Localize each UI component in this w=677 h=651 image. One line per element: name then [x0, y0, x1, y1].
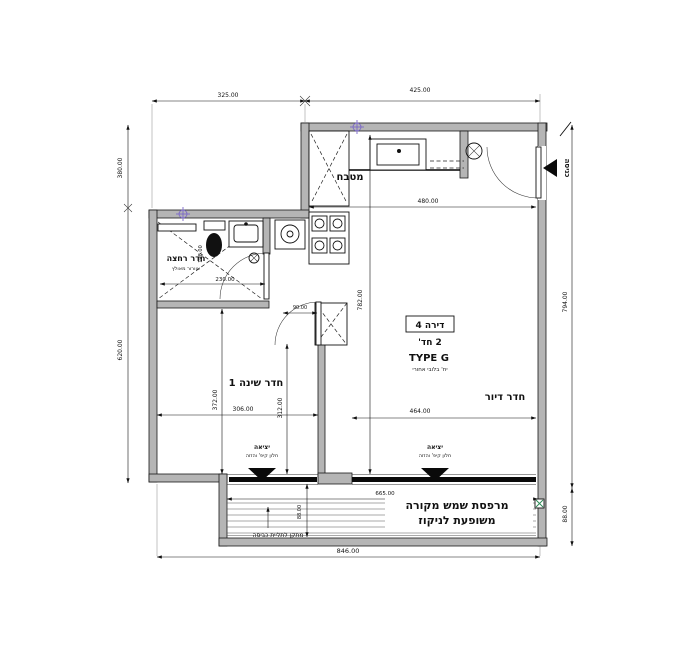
balcony-label-line2: משופעת לניקוז: [418, 514, 495, 527]
outer-walls: [149, 122, 571, 546]
toilet-bowl: [206, 233, 222, 257]
dim-bottom-total: 846.00: [337, 547, 360, 555]
dim-left-upper: 380.00: [117, 157, 124, 178]
floor-plan-canvas: 325.00 425.00 380.00 620.00 794.00 88.00…: [0, 0, 677, 651]
dim-right-balcony: 88.00: [562, 505, 569, 522]
dim-bedroom-width: 306.00: [233, 406, 254, 413]
wall-bottom-west: [149, 474, 227, 482]
sink-basin: [234, 225, 258, 242]
burner: [330, 216, 345, 231]
wall-left: [149, 210, 157, 482]
room-label-kitchen: מטבח: [337, 172, 364, 183]
wall-bathroom-bottom: [157, 301, 269, 308]
dim-bathroom-width: 230.00: [215, 277, 235, 283]
dim-top-right: 425.00: [410, 87, 431, 94]
room-label-living: חדר דיור: [485, 392, 526, 403]
wall-bathroom-right: [263, 218, 270, 254]
bedroom-window-band: [229, 477, 317, 482]
laundry-label: מתקן לתליית כביסה: [253, 532, 304, 539]
unit-number-label: דירה 4: [416, 321, 445, 331]
burner: [312, 216, 327, 231]
exit-label-bedroom: יציאה: [254, 444, 270, 451]
balcony-label-line1: מרפסת שמש מקורה: [405, 499, 508, 512]
exit-note-bedroom: חלון קיפ' והזזה: [246, 453, 279, 459]
roof-tick: [560, 122, 571, 136]
dim-bedroom-inner-height: 312.00: [277, 397, 284, 418]
bath-shelf: [158, 224, 196, 231]
entrance-door-leaf: [536, 147, 541, 198]
room-note-bathroom: אוורור מאולץ: [172, 266, 200, 272]
wall-balcony-left: [219, 474, 227, 546]
sink-faucet: [244, 222, 248, 226]
washing-machine: [275, 220, 305, 249]
kitchen-fixtures: [309, 131, 482, 264]
bathroom-door-leaf: [264, 253, 269, 299]
dim-left-lower: 620.00: [117, 339, 124, 360]
entrance-door-arc: [487, 147, 538, 198]
room-label-bedroom: חדר שינה 1: [229, 378, 284, 389]
burner: [330, 238, 345, 253]
entrance-label: כניסה: [563, 159, 571, 178]
kitchen-sink-basin: [377, 144, 419, 165]
exit-label-living: יציאה: [427, 444, 443, 451]
dim-kitchen-width: 480.00: [418, 198, 439, 205]
hall-door-leaf: [316, 302, 321, 345]
room-label-bathroom: חדר רחצה: [167, 254, 206, 263]
unit-type-label: TYPE G: [409, 353, 449, 364]
kitchen-faucet: [397, 149, 401, 153]
living-window-band: [352, 477, 536, 482]
wall-bedroom-living: [318, 340, 325, 477]
exit-note-living: חלון קיפ' והזזה: [419, 453, 452, 459]
dim-living-width: 464.00: [410, 408, 431, 415]
dim-bedroom-height: 372.00: [212, 389, 219, 410]
wall-top: [301, 123, 547, 131]
toilet-tank: [204, 221, 225, 230]
unit-note: יח' בלובי אחורי: [412, 366, 447, 373]
wall-kitchen-left: [301, 123, 309, 218]
dim-top-left: 325.00: [218, 92, 239, 99]
wall-balcony-bottom: [219, 538, 547, 546]
unit-rooms-count: 2 חד': [418, 338, 442, 348]
burner: [312, 238, 327, 253]
window-bands: [227, 475, 536, 485]
dim-balcony-depth: 88.00: [297, 505, 303, 519]
dim-right-full: 794.00: [562, 291, 569, 312]
dim-shaft-width: 90.00: [293, 305, 307, 311]
dim-balcony-width: 665.00: [375, 491, 395, 497]
floor-plan-drawing: 325.00 425.00 380.00 620.00 794.00 88.00…: [0, 0, 677, 651]
wall-bathroom-top: [149, 210, 309, 218]
wall-bottom-pier: [318, 473, 352, 484]
dim-interior-height: 782.00: [357, 289, 364, 310]
